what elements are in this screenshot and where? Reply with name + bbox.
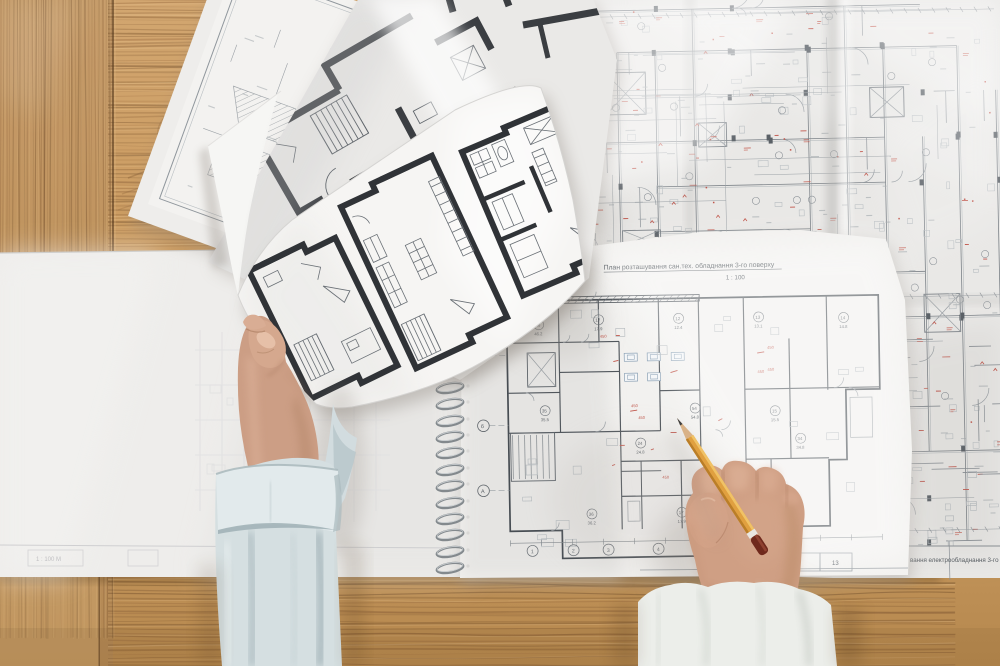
svg-text:450: 450 bbox=[631, 403, 639, 408]
svg-text:2: 2 bbox=[572, 549, 575, 555]
svg-text:450: 450 bbox=[638, 415, 646, 420]
svg-text:35: 35 bbox=[542, 408, 548, 413]
svg-text:35.5: 35.5 bbox=[541, 417, 550, 422]
svg-text:1: 1 bbox=[531, 549, 534, 555]
svg-text:А: А bbox=[481, 489, 485, 495]
svg-text:б: б bbox=[481, 424, 484, 430]
svg-text:1 : 100 M: 1 : 100 M bbox=[36, 557, 61, 563]
